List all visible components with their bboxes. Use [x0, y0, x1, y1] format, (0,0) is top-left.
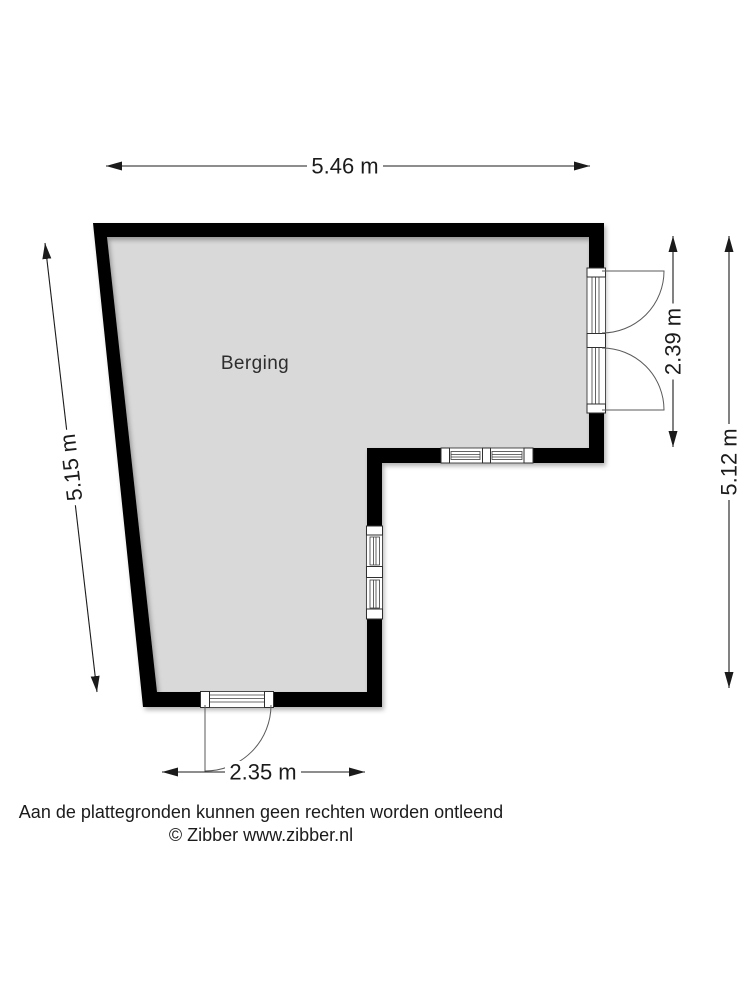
window-middle — [441, 448, 533, 463]
door-opening — [201, 692, 274, 708]
floorplan-svg: Berging 5.46 m 5.15 m 2.39 m — [0, 0, 750, 1000]
window-jamb-left — [441, 448, 450, 463]
window-jamb-right — [524, 448, 533, 463]
door-leaf-upper — [602, 271, 664, 333]
dimension-bottom: 2.35 m — [162, 760, 365, 785]
dimension-top: 5.46 m — [106, 154, 590, 179]
dimension-label: 5.46 m — [311, 154, 378, 179]
dimension-label: 5.15 m — [55, 433, 88, 503]
window-jamb-top — [367, 526, 383, 535]
dimension-label: 2.35 m — [229, 760, 296, 785]
copyright-text: © Zibber www.zibber.nl — [0, 824, 522, 847]
dimension-door-right: 2.39 m — [661, 236, 686, 447]
window-jamb-center — [483, 448, 491, 463]
footer: Aan de plattegronden kunnen geen rechten… — [0, 801, 522, 847]
floor-area — [107, 237, 589, 692]
window-jamb-bottom — [367, 609, 383, 619]
room-label: Berging — [221, 353, 289, 374]
dimension-label: 2.39 m — [661, 308, 686, 375]
floorplan-page: Berging 5.46 m 5.15 m 2.39 m — [0, 0, 750, 1000]
door-jamb-top — [587, 268, 606, 277]
door-jamb-center — [587, 334, 606, 348]
dimension-left: 5.15 m — [45, 243, 97, 692]
dimension-right: 5.12 m — [717, 236, 742, 688]
double-door-right — [587, 268, 664, 413]
door-jamb-right — [265, 692, 274, 708]
door-jamb-bottom — [587, 404, 606, 413]
window-side — [367, 526, 383, 619]
window-jamb-center — [367, 567, 383, 578]
door-leaf-lower — [602, 348, 664, 410]
disclaimer-text: Aan de plattegronden kunnen geen rechten… — [0, 801, 522, 824]
dimension-label: 5.12 m — [717, 428, 742, 495]
